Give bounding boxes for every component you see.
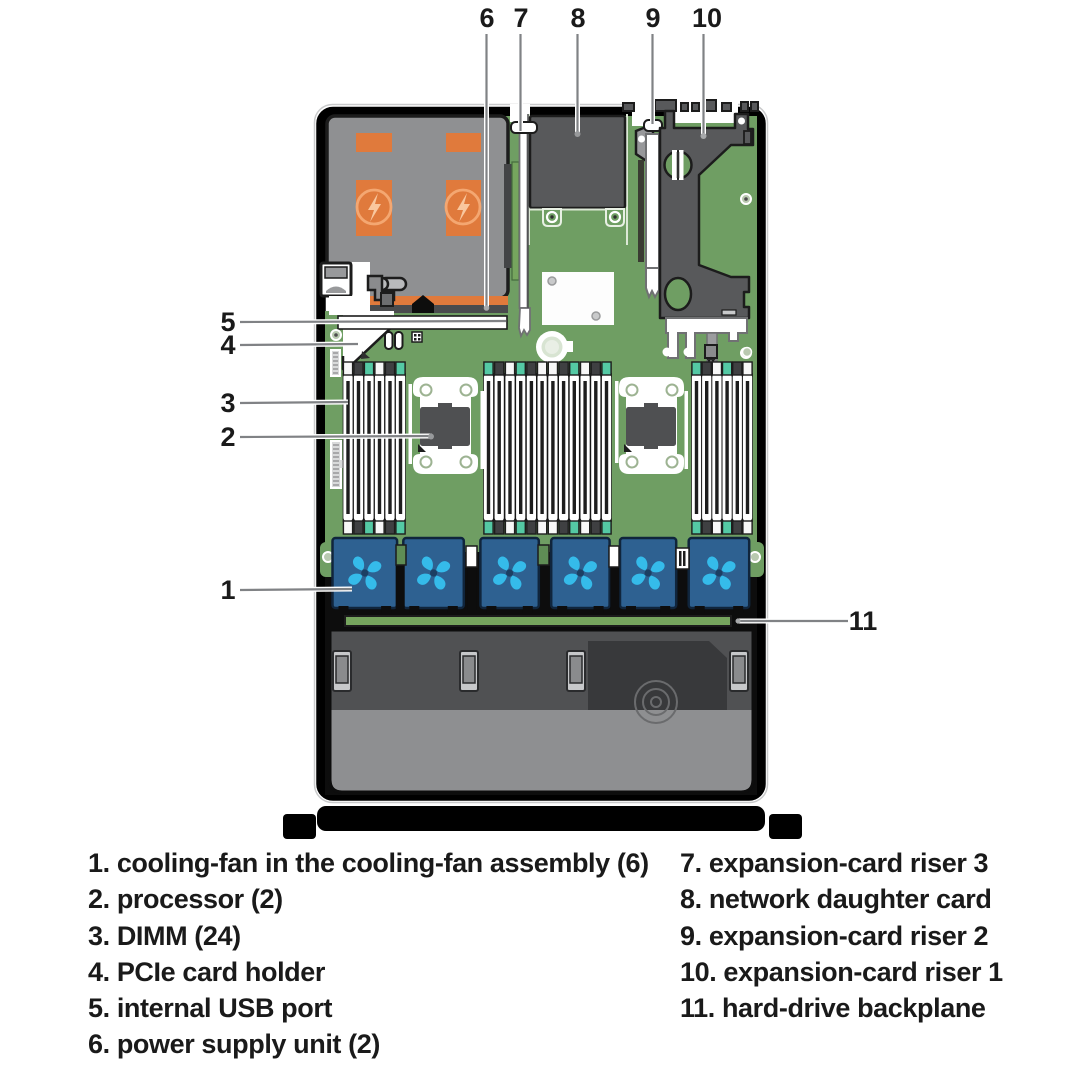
- svg-text:7: 7: [513, 3, 528, 33]
- svg-text:8. network daughter card: 8. network daughter card: [680, 884, 991, 914]
- svg-text:6. power supply unit (2): 6. power supply unit (2): [88, 1029, 380, 1059]
- svg-text:1. cooling-fan in the cooling-: 1. cooling-fan in the cooling-fan assemb…: [88, 848, 649, 878]
- svg-text:3: 3: [220, 388, 235, 418]
- svg-text:9: 9: [645, 3, 660, 33]
- svg-text:5. internal USB port: 5. internal USB port: [88, 993, 332, 1023]
- svg-text:10. expansion-card riser 1: 10. expansion-card riser 1: [680, 957, 1003, 987]
- svg-text:10: 10: [692, 3, 722, 33]
- svg-text:8: 8: [570, 3, 585, 33]
- svg-text:1: 1: [220, 575, 235, 605]
- svg-text:4: 4: [220, 330, 235, 360]
- svg-text:2: 2: [220, 422, 235, 452]
- svg-text:3. DIMM (24): 3. DIMM (24): [88, 921, 241, 951]
- svg-text:6: 6: [479, 3, 494, 33]
- svg-text:11: 11: [849, 606, 878, 636]
- svg-text:11. hard-drive backplane: 11. hard-drive backplane: [680, 993, 986, 1023]
- svg-text:4. PCIe card holder: 4. PCIe card holder: [88, 957, 326, 987]
- svg-text:9. expansion-card riser 2: 9. expansion-card riser 2: [680, 921, 988, 951]
- svg-text:7. expansion-card riser 3: 7. expansion-card riser 3: [680, 848, 989, 878]
- svg-text:2. processor (2): 2. processor (2): [88, 884, 283, 914]
